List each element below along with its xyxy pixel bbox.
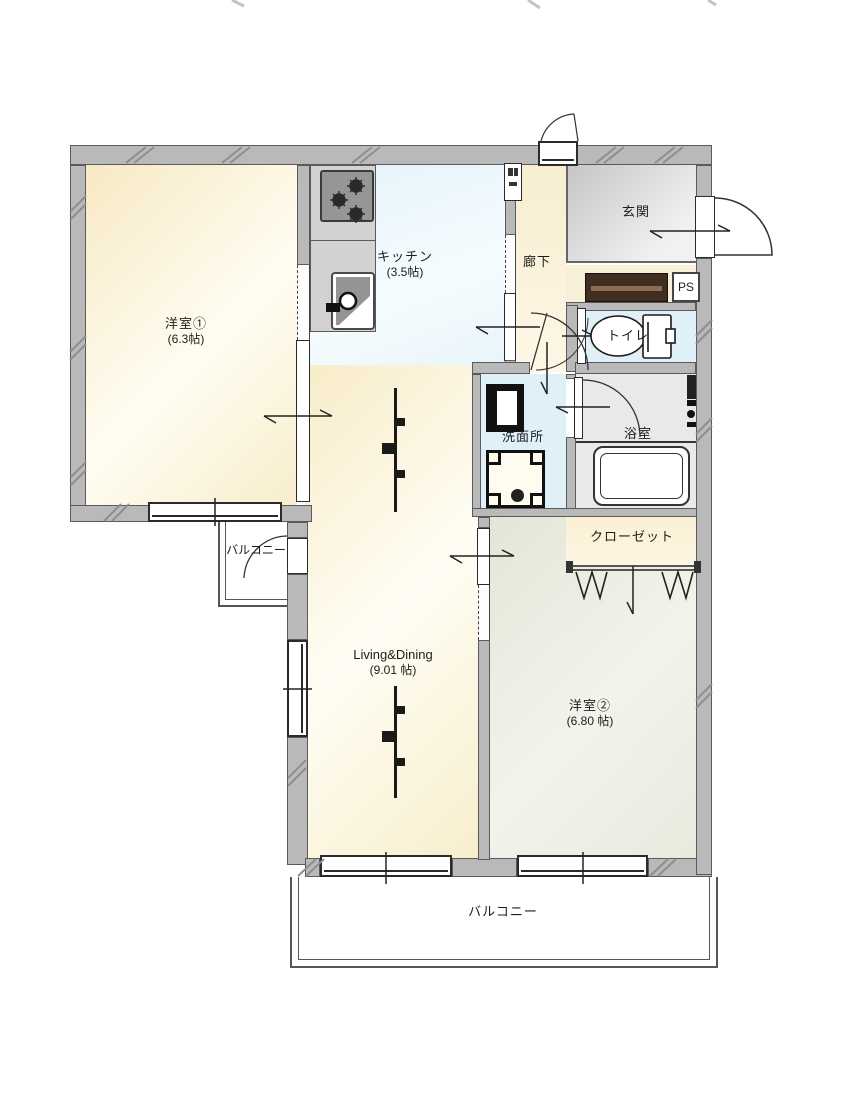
hallway-window-arc [541, 114, 578, 141]
shoe-cabinet [585, 273, 668, 302]
main-balcony [290, 877, 718, 968]
wall-bedroom2-west-cap [478, 517, 490, 528]
equipment-box [504, 163, 522, 201]
living-dining-name: Living&Dining [333, 647, 453, 663]
closet-name: クローゼット [588, 529, 676, 545]
kitchen-size: (3.5帖) [345, 265, 465, 280]
kitchen-sliding-door [504, 293, 516, 361]
wall-ld-west-b [287, 574, 308, 640]
bathroom-dark-fixture [687, 375, 696, 399]
wall-bottom-a [305, 858, 320, 877]
wall-left [70, 165, 86, 520]
toilet-label: トイレ [596, 328, 660, 344]
wall-ld-west-c [287, 737, 308, 865]
side-balcony [218, 522, 292, 607]
bedroom2-size: (6.80 帖) [530, 714, 650, 729]
shoe-cabinet-handle [591, 286, 662, 291]
washer-drain [511, 489, 524, 502]
bedroom1-name: 洋室① [116, 316, 256, 332]
bedroom2-sliding-door [477, 528, 490, 585]
side-balcony-name: バルコニー [220, 543, 292, 558]
side-balcony-railing [225, 522, 292, 600]
kitchen-sink [331, 272, 375, 330]
vanity-door [495, 389, 519, 427]
bathroom-name: 浴室 [606, 426, 670, 442]
closet-label: クローゼット [588, 529, 676, 545]
bedroom2-floor [490, 517, 696, 860]
bathtub-inner [600, 453, 683, 499]
bedroom1-label: 洋室① (6.3帖) [116, 316, 256, 346]
main-balcony-name: バルコニー [443, 904, 563, 920]
washroom-label: 洗面所 [491, 429, 555, 445]
washer-pan [486, 450, 545, 508]
hallway-top-window [538, 141, 578, 166]
ld-west-window [287, 640, 308, 737]
bedroom2-balcony-window [517, 855, 648, 877]
vanity-unit [486, 384, 524, 432]
wall-bottom-b [452, 858, 517, 877]
bedroom2-slide-pocket [478, 585, 490, 640]
kitchen-label: キッチン (3.5帖) [345, 249, 465, 279]
washer-pan-corner [489, 493, 501, 505]
wall-bedroom1-bottom-left [70, 505, 150, 522]
bedroom1-sliding-door [296, 340, 310, 502]
wall-bedroom1-east [297, 165, 310, 265]
wall-washroom-west [472, 374, 481, 516]
pipe-space-label: PS [678, 280, 694, 295]
wall-right-main [696, 258, 712, 875]
bedroom2-name: 洋室② [530, 698, 650, 714]
bathroom-door [574, 377, 583, 439]
sink-basin [336, 277, 370, 325]
kitchen-name: キッチン [345, 249, 465, 265]
washer-pan-corner [530, 453, 542, 465]
toilet-door [577, 308, 586, 364]
washer-pan-corner [530, 493, 542, 505]
entrance-label: 玄関 [606, 204, 666, 220]
bedroom1-size: (6.3帖) [116, 332, 256, 347]
hallway-name: 廊下 [507, 254, 567, 270]
entrance-name: 玄関 [606, 204, 666, 220]
kitchen-counter-divider [310, 240, 376, 241]
floorplan-page: { "plan": { "rooms": { "bedroom1": {"nam… [0, 0, 866, 1102]
wall-top [70, 145, 712, 165]
bedroom1-south-window [148, 502, 282, 522]
wall-bedroom2-west [478, 640, 490, 860]
bedroom1-slide-pocket [297, 265, 310, 340]
washroom-name: 洗面所 [491, 429, 555, 445]
floorplan-canvas: PS [0, 0, 866, 1102]
washer-pan-corner [489, 453, 501, 465]
bedroom2-label: 洋室② (6.80 帖) [530, 698, 650, 728]
wall-bedroom1-bottom-right [280, 505, 312, 522]
entrance-door-panel [695, 196, 715, 258]
living-dining-floor [305, 365, 478, 860]
ld-balcony-window [320, 855, 452, 877]
wall-right-top [696, 165, 712, 197]
crop-marks [232, 0, 716, 8]
living-dining-size: (9.01 帖) [333, 663, 453, 678]
main-balcony-label: バルコニー [443, 904, 563, 920]
entrance-door-arc [715, 198, 772, 255]
living-dining-label: Living&Dining (9.01 帖) [333, 647, 453, 677]
wall-water-north-b [575, 362, 696, 374]
stove [320, 170, 374, 222]
wall-wash-bath-b [566, 437, 576, 510]
pipe-space-box: PS [672, 272, 700, 302]
wall-water-north-a [472, 362, 530, 374]
toilet-name: トイレ [596, 328, 660, 344]
hallway-label: 廊下 [507, 254, 567, 270]
bathroom-label: 浴室 [606, 426, 670, 442]
bathtub [593, 446, 690, 506]
side-balcony-label: バルコニー [220, 543, 292, 558]
wall-water-south [472, 508, 697, 517]
wall-ld-west-a [287, 522, 308, 538]
